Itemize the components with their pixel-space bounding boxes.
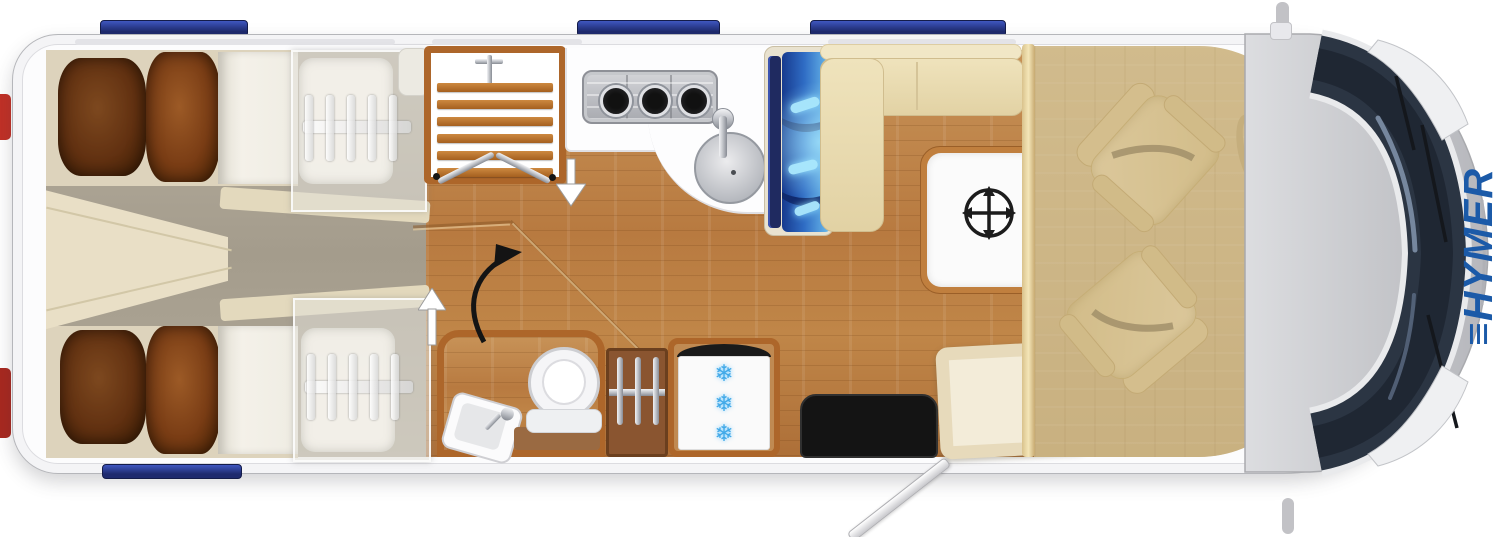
lounge-bench-side <box>820 58 884 232</box>
mattress-bottom <box>218 326 298 454</box>
turn-curved-arrow-icon <box>460 244 524 344</box>
walkway-down-arrow-icon <box>556 158 586 208</box>
sink-drain <box>731 170 736 175</box>
entry-step-mat <box>800 394 938 458</box>
washroom-up-arrow-icon <box>418 288 446 346</box>
tail-light-bottom-icon <box>0 368 11 438</box>
snowflake-icon: ❄ <box>714 418 733 448</box>
hanger-icon <box>635 357 641 425</box>
freezer-door: ❄ ❄ ❄ <box>678 356 770 450</box>
wall-window-kitchen <box>432 39 582 45</box>
hanger-icon <box>617 357 623 425</box>
brand-logo-mark: ≡ <box>1455 321 1500 346</box>
slat-bar <box>307 354 315 420</box>
snowflake-icon: ❄ <box>714 358 733 388</box>
hanger-icon <box>653 357 659 425</box>
tail-light-top-icon <box>0 94 11 140</box>
washbasin <box>439 390 524 466</box>
door-hinge-dot <box>433 173 440 180</box>
slat-bar <box>305 95 313 161</box>
snowflake-icon: ❄ <box>714 388 733 418</box>
shower-cubicle <box>424 46 566 184</box>
pillow-dark-top <box>58 58 146 176</box>
brand-name: HYMER <box>1455 168 1500 321</box>
slat-bar <box>368 95 376 161</box>
toilet <box>522 347 606 439</box>
wall-window-bedroom <box>75 39 395 45</box>
washroom <box>437 330 605 457</box>
bench-cushion-seam <box>916 62 918 110</box>
slat-bar <box>391 354 399 420</box>
slat-bar <box>347 95 355 161</box>
floorplan-canvas: ❄ ❄ ❄ ≡HYMER <box>0 0 1500 537</box>
wardrobe <box>606 348 668 457</box>
duckboard-slat <box>437 134 553 143</box>
kitchen-sink <box>694 132 766 204</box>
freezer: ❄ ❄ ❄ <box>668 338 780 457</box>
cab-partition <box>1022 44 1035 457</box>
toilet-seat <box>542 359 586 405</box>
bed-extension-bottom <box>293 298 431 462</box>
duckboard-slat <box>437 100 553 109</box>
slat-bar <box>326 95 334 161</box>
tap-pipe <box>719 116 727 158</box>
mattress-top <box>218 52 298 184</box>
pillow-bottom <box>146 326 220 454</box>
rear-bottom-window-icon <box>102 464 242 479</box>
duckboard-slat <box>437 117 553 126</box>
slat-bar <box>389 95 397 161</box>
gas-hob <box>582 70 718 124</box>
side-mirror-top-cap <box>1270 22 1292 40</box>
burner-icon <box>678 85 710 117</box>
fridge-door-panel <box>768 56 781 228</box>
door-hinge-dot <box>549 174 556 181</box>
slat-bar <box>349 354 357 420</box>
basin-bowl <box>453 402 508 451</box>
brand-wordmark: ≡HYMER <box>1455 137 1499 377</box>
burner-icon <box>639 85 671 117</box>
table-move-four-way-arrow-icon <box>960 184 1018 242</box>
slat-bar <box>328 354 336 420</box>
slat-bar <box>370 354 378 420</box>
toilet-base <box>526 409 602 433</box>
duckboard-slat <box>437 83 553 92</box>
side-mirror-bottom-icon <box>1282 498 1294 534</box>
burner-icon <box>600 85 632 117</box>
pillow-top <box>146 52 220 182</box>
pillow-dark-bottom <box>60 330 146 444</box>
